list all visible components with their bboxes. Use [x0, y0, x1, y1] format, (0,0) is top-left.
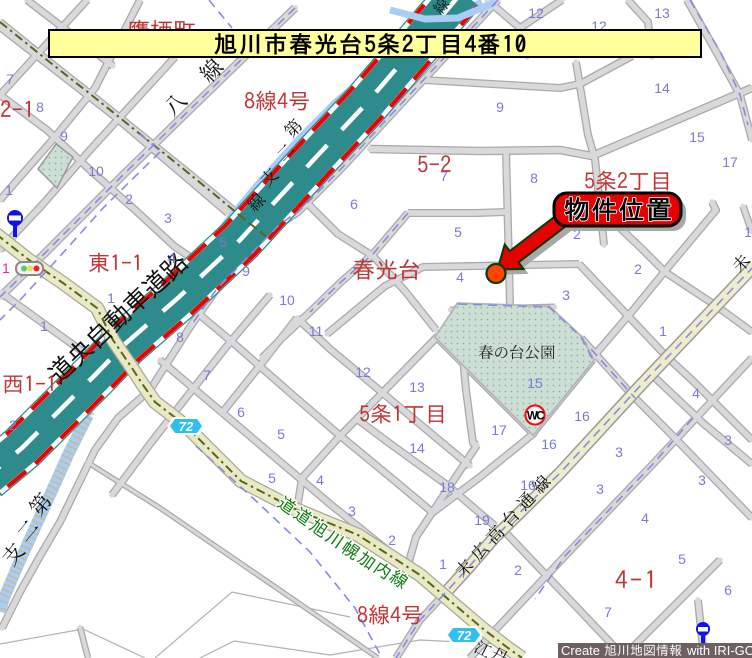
svg-text:3: 3 — [348, 503, 356, 519]
svg-text:16: 16 — [574, 408, 590, 424]
svg-text:10: 10 — [279, 292, 295, 308]
svg-text:1: 1 — [2, 260, 10, 276]
svg-text:8: 8 — [530, 170, 538, 186]
svg-text:1: 1 — [5, 182, 13, 198]
svg-text:16: 16 — [520, 477, 536, 493]
svg-text:5: 5 — [268, 470, 276, 486]
svg-text:10: 10 — [88, 163, 104, 179]
svg-text:1: 1 — [744, 224, 752, 240]
svg-text:17: 17 — [491, 422, 507, 438]
svg-text:6: 6 — [237, 404, 245, 420]
svg-text:12: 12 — [355, 364, 371, 380]
svg-text:3: 3 — [164, 210, 172, 226]
svg-text:7: 7 — [203, 367, 211, 383]
svg-text:3: 3 — [698, 472, 706, 488]
svg-text:WC: WC — [527, 411, 544, 423]
svg-text:3: 3 — [562, 287, 570, 303]
svg-text:13: 13 — [409, 379, 425, 395]
svg-text:5: 5 — [219, 234, 227, 250]
svg-text:72: 72 — [179, 419, 194, 434]
svg-text:6: 6 — [724, 582, 732, 598]
svg-text:4: 4 — [692, 385, 700, 401]
svg-text:9: 9 — [242, 263, 250, 279]
svg-text:6: 6 — [350, 196, 358, 212]
svg-text:15: 15 — [689, 129, 705, 145]
svg-text:1: 1 — [659, 323, 667, 339]
svg-text:15: 15 — [527, 375, 543, 391]
svg-text:5: 5 — [277, 426, 285, 442]
svg-text:4: 4 — [168, 250, 176, 266]
svg-text:17: 17 — [722, 154, 738, 170]
svg-text:7: 7 — [604, 604, 612, 620]
svg-text:4: 4 — [316, 472, 324, 488]
svg-text:72: 72 — [457, 628, 472, 643]
svg-text:4: 4 — [456, 269, 464, 285]
svg-text:2: 2 — [634, 261, 642, 277]
svg-text:5: 5 — [454, 224, 462, 240]
svg-text:3: 3 — [615, 444, 623, 460]
svg-text:14: 14 — [409, 440, 425, 456]
svg-text:5: 5 — [678, 551, 686, 567]
svg-text:18: 18 — [439, 479, 455, 495]
svg-text:1: 1 — [439, 556, 447, 572]
svg-text:with IRI-GO: with IRI-GO — [686, 643, 752, 658]
svg-text:13: 13 — [654, 5, 670, 21]
svg-text:19: 19 — [474, 512, 490, 528]
svg-text:7: 7 — [440, 168, 448, 184]
svg-text:2: 2 — [388, 532, 396, 548]
svg-text:11: 11 — [309, 323, 324, 339]
svg-text:4: 4 — [641, 510, 649, 526]
svg-text:8: 8 — [36, 99, 44, 115]
svg-text:14: 14 — [654, 80, 670, 96]
svg-text:Create: Create — [561, 643, 600, 658]
svg-text:9: 9 — [60, 128, 68, 144]
svg-text:2: 2 — [514, 562, 522, 578]
svg-text:2: 2 — [9, 417, 17, 433]
svg-text:7: 7 — [6, 71, 14, 87]
svg-text:1: 1 — [40, 318, 48, 334]
svg-text:1: 1 — [107, 290, 115, 306]
svg-text:3: 3 — [724, 432, 732, 448]
svg-text:9: 9 — [496, 99, 504, 115]
svg-text:12: 12 — [528, 5, 544, 21]
svg-text:3: 3 — [596, 481, 604, 497]
svg-text:2: 2 — [125, 191, 133, 207]
svg-text:8: 8 — [176, 329, 184, 345]
svg-text:16: 16 — [541, 436, 557, 452]
